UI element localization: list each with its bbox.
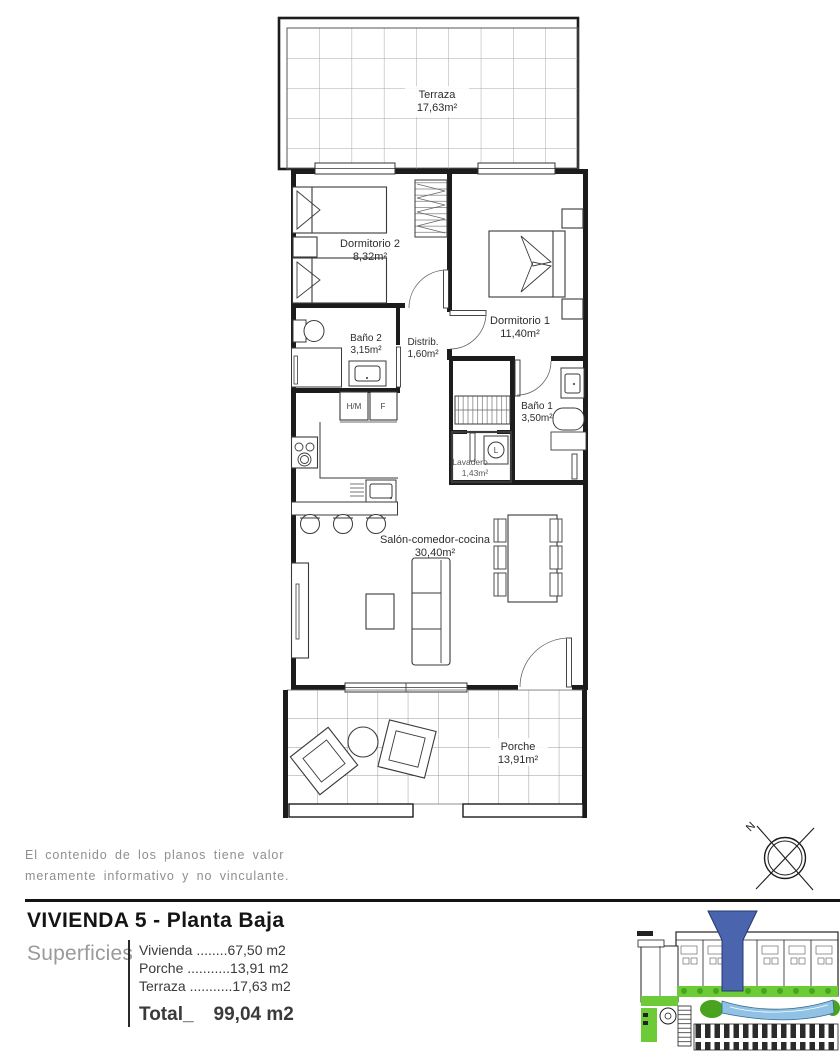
single-bed-icon (293, 258, 387, 303)
dormitorio1-label: Dormitorio 1 (490, 315, 550, 327)
tv-unit-icon (292, 563, 309, 658)
bar-stool-icon (333, 515, 353, 534)
surface-row-vivienda: Vivienda ........67,50 m2 (139, 941, 294, 959)
porche-area: 13,91m² (498, 754, 539, 766)
fridge-cabinet: F (370, 392, 397, 420)
surface-row-porche: Porche ...........13,91 m2 (139, 959, 294, 977)
title-block: VIVIENDA 5 - Planta Baja Superficies Viv… (27, 909, 294, 1027)
salon-label: Salón-comedor-cocina (380, 534, 491, 546)
surface-total: Total_99,04 m2 (139, 1003, 294, 1028)
window-dormitorio2 (315, 163, 395, 174)
room-salon: Salón-comedor-cocina 30,40m² (292, 515, 572, 687)
distribuidor-area: 1,60m² (407, 349, 439, 360)
room-bano2: Baño 2 3,15m² (292, 320, 401, 387)
terraza-area: 17,63m² (417, 102, 458, 114)
distribuidor-label: Distrib. (407, 337, 438, 348)
roundabout (660, 1008, 676, 1024)
disclaimer: El contenido de los planos tiene valor m… (25, 845, 289, 887)
toilet-icon (293, 320, 324, 342)
bar-stool-icon (366, 515, 386, 534)
north-label: N (744, 820, 758, 834)
compass-rose-icon: N (744, 820, 814, 890)
entry-door (520, 638, 572, 687)
footer-rule (25, 899, 840, 902)
window-dormitorio1 (478, 163, 555, 174)
parking-row (694, 1024, 838, 1050)
stairs (678, 1006, 691, 1046)
nightstand-icon (562, 209, 583, 228)
room-dormitorio2: Dormitorio 2 8,32m² (293, 180, 448, 303)
washbasin-icon (349, 361, 386, 386)
bathtub-icon (553, 408, 584, 430)
porch-step (463, 804, 583, 817)
porch-step (289, 804, 413, 817)
room-porche: Porche 13,91m² (283, 690, 587, 818)
lavadero-area: 1,43m² (462, 468, 489, 478)
single-bed-icon (293, 187, 387, 233)
room-bano1: Baño 1 3,50m² (515, 360, 586, 479)
room-dormitorio1: Dormitorio 1 11,40m² (489, 209, 583, 340)
building-block (641, 946, 678, 1002)
hob-icon (292, 437, 318, 468)
sliding-door-bano2 (397, 347, 401, 387)
patio-table-icon (348, 727, 378, 757)
shower-icon (292, 348, 342, 387)
bano1-area: 3,50m² (521, 413, 553, 424)
closet-shelf-icon (551, 432, 586, 450)
porche-label: Porche (501, 741, 536, 753)
disclaimer-line2: meramente informativo y no vinculante. (25, 866, 289, 887)
door-dormitorio1 (450, 311, 486, 350)
surface-list: Vivienda ........67,50 m2 Porche .......… (139, 940, 294, 1027)
site-plan-thumbnail (636, 908, 840, 1052)
divider (128, 940, 130, 1027)
sofa-icon (412, 558, 450, 665)
sink-icon (350, 480, 396, 502)
terraza-label: Terraza (419, 89, 457, 101)
garden-strip (641, 996, 678, 1006)
dormitorio2-area: 8,32m² (353, 251, 388, 263)
coffee-table-icon (366, 594, 394, 629)
page-title: VIVIENDA 5 - Planta Baja (27, 909, 294, 933)
salon-area: 30,40m² (415, 547, 456, 559)
nightstand-icon (293, 237, 317, 257)
superficies-label: Superficies (27, 940, 128, 1027)
kitchen-zone: H/M F (292, 392, 399, 534)
hall-closet-icon (455, 396, 510, 424)
plan-sheet: Terraza 17,63m² (0, 0, 840, 1057)
svg-text:L: L (494, 446, 499, 455)
nightstand-icon (562, 299, 583, 319)
dormitorio1-area: 11,40m² (500, 328, 540, 340)
sliding-door-closet (572, 454, 577, 479)
disclaimer-line1: El contenido de los planos tiene valor (25, 845, 289, 866)
washbasin-icon (561, 368, 584, 398)
svg-text:F: F (381, 402, 386, 411)
bano2-area: 3,15m² (350, 345, 382, 356)
bano2-label: Baño 2 (350, 333, 382, 344)
svg-text:H/M: H/M (347, 402, 362, 411)
double-bed-icon (489, 231, 565, 297)
door-dormitorio2 (409, 270, 449, 308)
room-terraza: Terraza 17,63m² (279, 18, 578, 169)
breakfast-bar (292, 502, 398, 515)
dormitorio2-label: Dormitorio 2 (340, 238, 400, 250)
lavadero-label: Lavadero (452, 457, 488, 467)
counter-edge (320, 422, 398, 478)
bano1-label: Baño 1 (521, 401, 553, 412)
wardrobe-icon (415, 180, 447, 237)
door-bano1 (515, 360, 551, 396)
surface-row-terraza: Terraza ...........17,63 m2 (139, 977, 294, 995)
room-lavadero: L Lavadero 1,43m² (452, 432, 511, 482)
bar-stool-icon (300, 515, 320, 534)
washer-dryer-cabinet: H/M (340, 392, 368, 420)
